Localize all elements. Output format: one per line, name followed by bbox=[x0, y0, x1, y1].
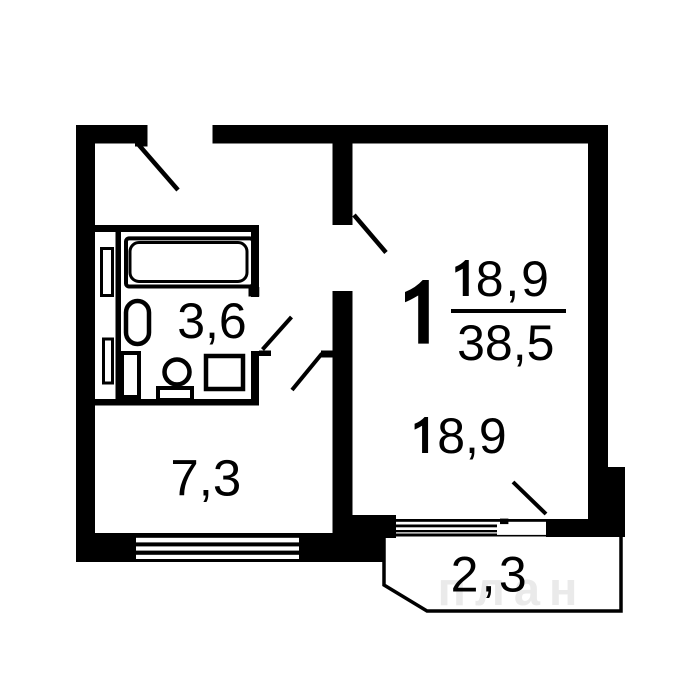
svg-text:8,9: 8,9 bbox=[476, 251, 551, 307]
svg-text:8,9: 8,9 bbox=[437, 408, 507, 464]
svg-text:38,5: 38,5 bbox=[457, 315, 554, 371]
svg-text:3,6: 3,6 bbox=[177, 293, 247, 349]
svg-text:7,3: 7,3 bbox=[170, 450, 241, 507]
svg-text:2,3: 2,3 bbox=[451, 546, 530, 602]
